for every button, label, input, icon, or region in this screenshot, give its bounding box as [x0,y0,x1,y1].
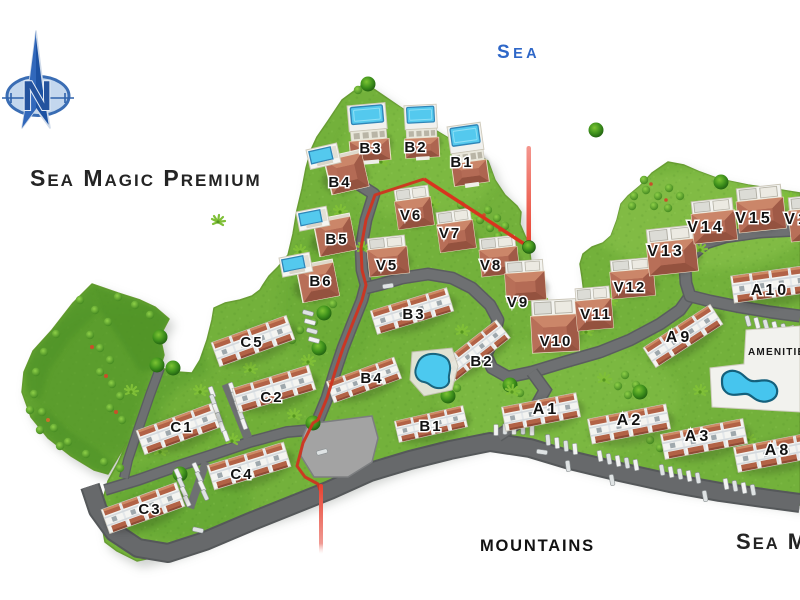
svg-text:V9: V9 [507,294,529,311]
svg-text:SEA: SEA [497,42,540,63]
svg-text:MOUNTAINS: MOUNTAINS [480,537,595,555]
svg-text:B3: B3 [359,140,382,157]
svg-text:B5: B5 [325,231,348,248]
svg-text:V1: V1 [784,211,800,228]
svg-text:C5: C5 [240,334,263,351]
svg-text:B2: B2 [470,353,493,370]
svg-text:V6: V6 [400,207,422,224]
svg-text:C2: C2 [260,389,283,406]
svg-text:V11: V11 [580,306,612,323]
svg-text:V12: V12 [614,279,647,296]
svg-text:B1: B1 [450,154,473,171]
svg-text:A1: A1 [533,401,559,418]
svg-text:V14: V14 [687,219,724,236]
svg-text:A3: A3 [685,428,711,445]
svg-text:N: N [22,72,52,119]
svg-text:C3: C3 [138,501,161,518]
svg-text:A9: A9 [666,329,692,346]
svg-text:V10: V10 [540,333,573,350]
svg-text:B6: B6 [309,273,332,290]
svg-text:AMENITIES: AMENITIES [748,347,800,358]
svg-text:C4: C4 [230,466,253,483]
svg-text:B1: B1 [419,418,442,435]
svg-text:V13: V13 [647,243,684,260]
svg-text:A10: A10 [751,282,789,299]
svg-text:B2: B2 [404,139,427,156]
svg-text:B3: B3 [402,306,425,323]
svg-text:V7: V7 [439,225,461,242]
svg-text:A2: A2 [617,412,643,429]
svg-text:V8: V8 [480,257,502,274]
svg-text:B4: B4 [360,370,383,387]
svg-text:C1: C1 [170,419,193,436]
svg-text:A8: A8 [765,442,791,459]
svg-text:B4: B4 [328,174,351,191]
svg-text:V15: V15 [735,210,772,227]
svg-text:V5: V5 [376,257,398,274]
